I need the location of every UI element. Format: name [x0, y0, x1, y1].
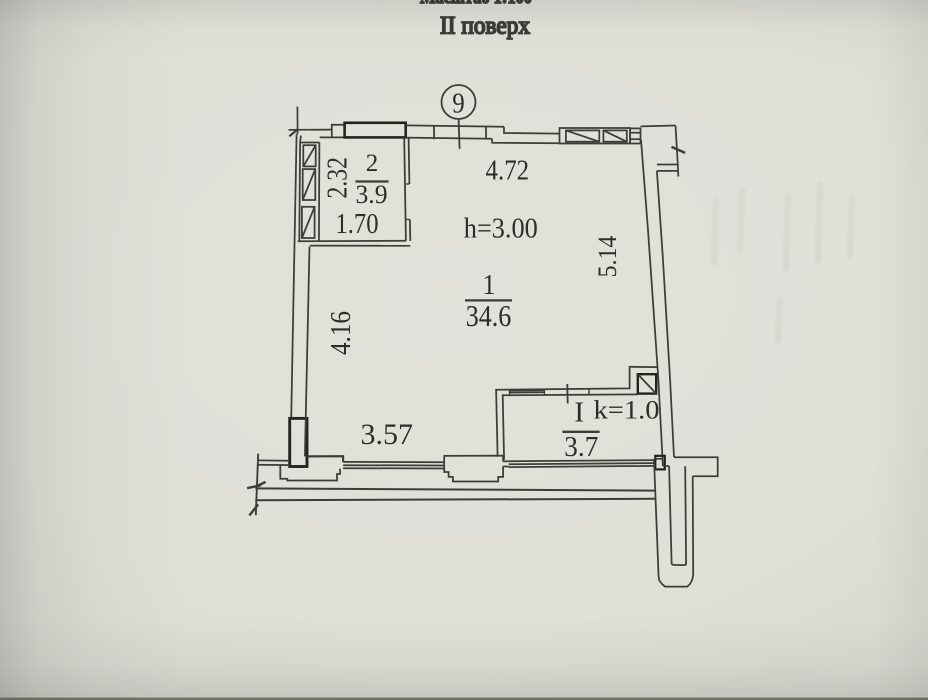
svg-text:4.16: 4.16	[326, 311, 357, 355]
svg-text:3.7: 3.7	[564, 431, 598, 463]
svg-text:3.57: 3.57	[360, 418, 413, 451]
svg-text:34.6: 34.6	[466, 298, 512, 333]
svg-text:h=3.00: h=3.00	[464, 213, 538, 244]
svg-text:2.32: 2.32	[322, 157, 353, 199]
svg-text:k=1.0: k=1.0	[594, 396, 660, 425]
svg-text:9: 9	[452, 89, 465, 120]
svg-text:4.72: 4.72	[486, 154, 530, 186]
svg-text:2: 2	[366, 150, 379, 177]
svg-text:5.14: 5.14	[593, 236, 622, 278]
svg-text:1.70: 1.70	[336, 208, 379, 240]
svg-text:II поверх: II поверх	[440, 13, 530, 40]
svg-text:Масштаб 1:100: Масштаб 1:100	[420, 0, 532, 8]
svg-text:3.9: 3.9	[356, 179, 388, 209]
svg-text:1: 1	[483, 269, 496, 301]
svg-text:I: I	[574, 397, 584, 429]
